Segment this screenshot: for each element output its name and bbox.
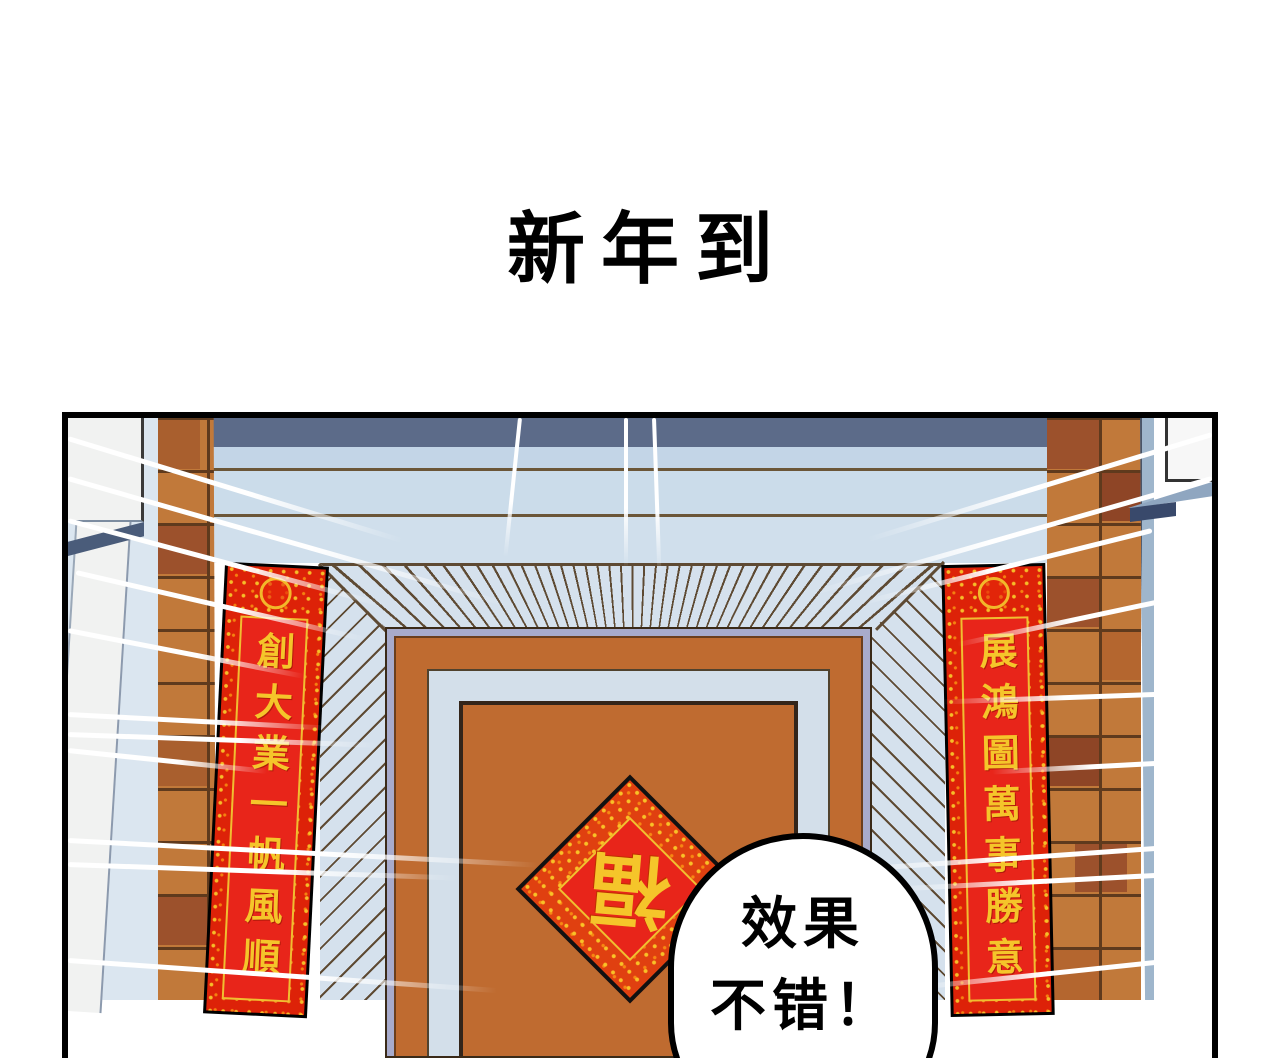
doorway-scene: 福 [68,418,1212,1058]
couplet-ornate-border: 創大業一帆風順 [206,565,326,1015]
comic-panel: 福 [62,412,1218,1058]
door-surround-rays-top [320,563,945,630]
cornice-left [68,418,144,522]
spring-couplet-left: 創大業一帆風順 [203,562,329,1019]
spring-couplet-right: 展鴻圖萬事勝意 [941,563,1054,1017]
couplet-text-panel: 展鴻圖萬事勝意 [960,616,1036,1001]
speech-bubble-text-line2: 不错！ [674,979,932,1035]
couplet-left-text: 創大業一帆風順 [237,630,292,988]
speech-bubble-text-line1: 效果 [674,897,932,953]
couplet-right-text: 展鴻圖萬事勝意 [976,630,1021,988]
speed-line [624,418,628,568]
couplet-medallion-icon [978,577,1011,610]
ledge-right [1165,418,1212,482]
fu-character-inverted: 福 [587,846,674,933]
page-title: 新年到 [0,208,1280,294]
